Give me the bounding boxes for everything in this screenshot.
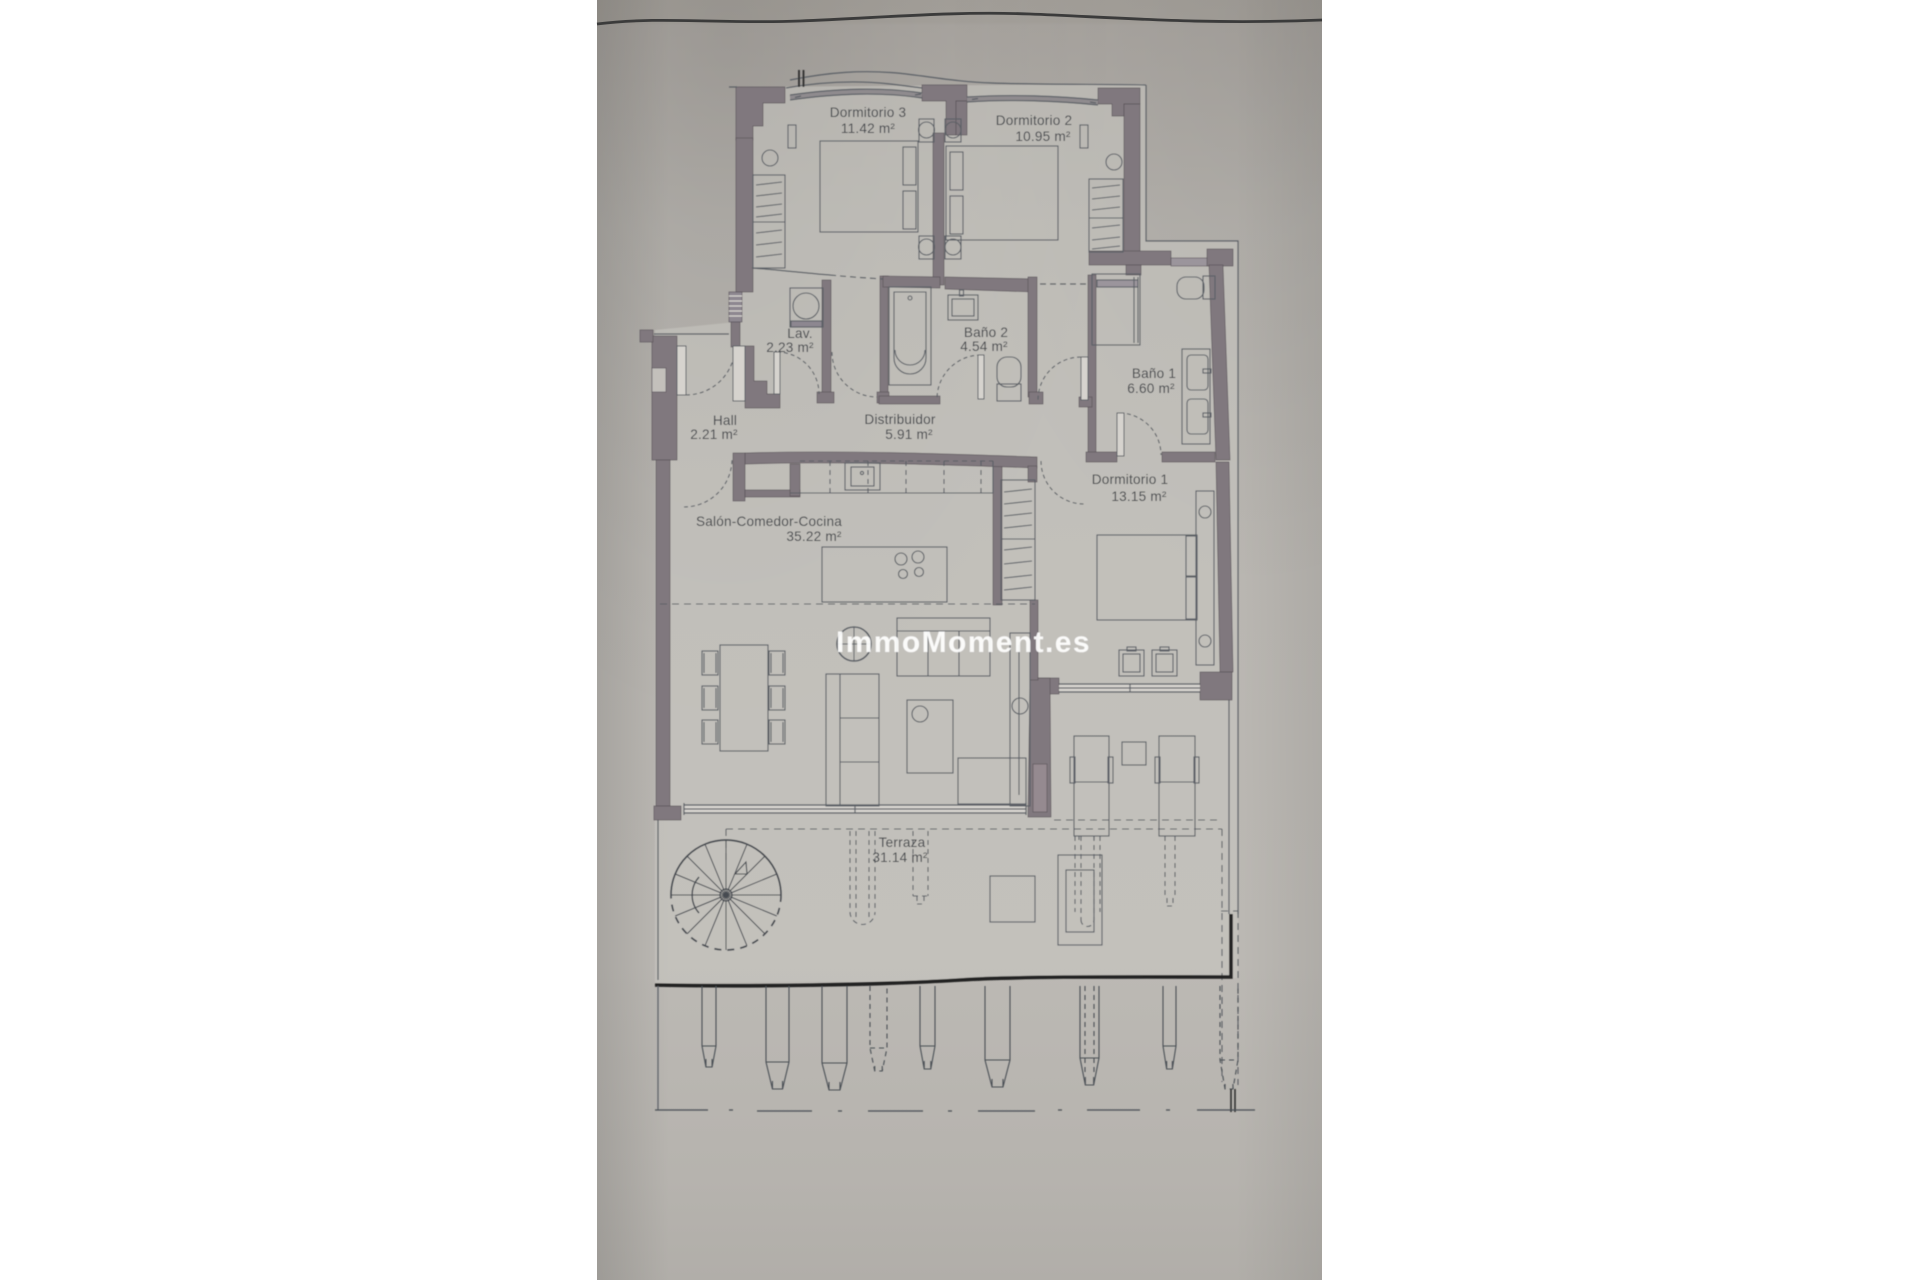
svg-text:31.14 m²: 31.14 m²: [872, 850, 928, 865]
svg-text:Baño 2: Baño 2: [964, 325, 1008, 340]
svg-text:Dormitorio 3: Dormitorio 3: [830, 105, 906, 120]
svg-text:13.15 m²: 13.15 m²: [1111, 489, 1167, 504]
svg-text:Distribuidor: Distribuidor: [864, 412, 935, 427]
svg-text:Lav.: Lav.: [787, 326, 813, 341]
svg-text:Dormitorio 1: Dormitorio 1: [1092, 472, 1168, 487]
svg-text:5.91 m²: 5.91 m²: [885, 427, 933, 442]
svg-text:10.95 m²: 10.95 m²: [1015, 129, 1071, 144]
svg-text:Hall: Hall: [713, 413, 737, 428]
svg-text:Terraza: Terraza: [879, 835, 926, 850]
svg-text:Baño 1: Baño 1: [1132, 366, 1176, 381]
svg-text:ImmoMoment.es: ImmoMoment.es: [836, 626, 1091, 659]
svg-text:11.42 m²: 11.42 m²: [841, 121, 896, 136]
svg-text:35.22 m²: 35.22 m²: [786, 529, 842, 544]
svg-text:6.60 m²: 6.60 m²: [1127, 381, 1175, 396]
svg-text:Salón-Comedor-Cocina: Salón-Comedor-Cocina: [696, 514, 842, 529]
svg-text:4.54 m²: 4.54 m²: [960, 339, 1008, 354]
svg-text:Dormitorio 2: Dormitorio 2: [996, 113, 1072, 128]
svg-text:2.21 m²: 2.21 m²: [690, 427, 738, 442]
svg-text:2.23 m²: 2.23 m²: [766, 340, 814, 355]
